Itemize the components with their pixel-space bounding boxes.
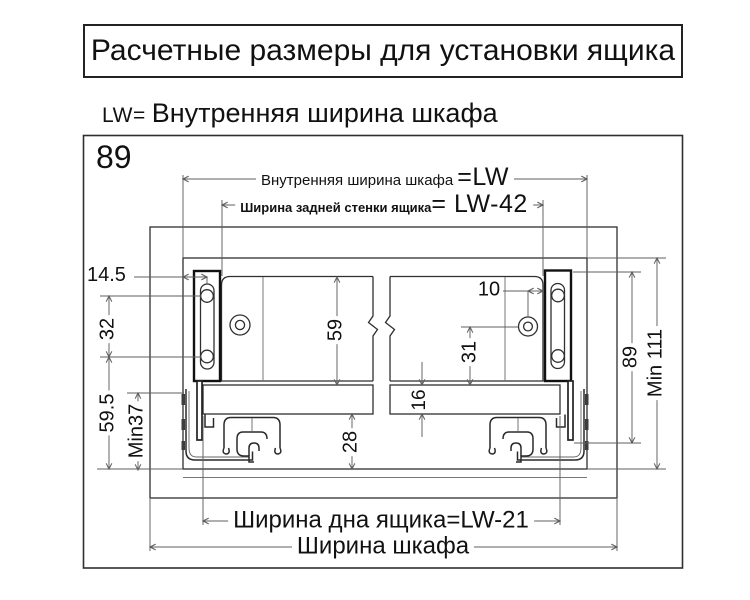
dim-label-min-inner-height: Min 111 xyxy=(645,326,668,400)
dim-label-bottom-thickness: 16 xyxy=(410,389,430,410)
corner-label-89: 89 xyxy=(96,141,132,175)
drawer-bottom-value: =LW-21 xyxy=(446,507,529,532)
dim-label-system-height: 89 xyxy=(620,343,643,371)
subtitle-lw-symbol: LW= xyxy=(102,104,146,128)
dim-label-hole-to-bottom: 31 xyxy=(459,338,482,366)
page-title: Расчетные размеры для установки ящика xyxy=(91,34,675,68)
back-width-text: Ширина задней стенки ящика xyxy=(240,201,431,215)
dim-label-hole-spacing: 32 xyxy=(97,315,120,343)
dim-label-hole-edge-offset: 10 xyxy=(478,280,500,301)
drawer-back-left xyxy=(222,277,378,382)
subtitle-text: Внутренняя ширина шкафа xyxy=(152,98,498,129)
subtitle: LW= Внутренняя ширина шкафа xyxy=(102,98,498,129)
cabinet-width-text: Ширина шкафа xyxy=(297,533,469,558)
title-box: Расчетные размеры для установки ящика xyxy=(83,24,683,78)
back-width-value: = LW-42 xyxy=(431,191,527,217)
dim-label-rail-min-clearance: Min37 xyxy=(126,401,149,461)
rear-bracket-right xyxy=(545,271,571,382)
dim-label-lower-height: 59.5 xyxy=(97,391,120,436)
dim-label-cabinet-width: Ширина шкафа xyxy=(292,533,474,558)
dim-label-back-width: Ширина задней стенки ящика = LW-42 xyxy=(235,191,533,217)
inner-width-text: Внутренняя ширина шкафа xyxy=(261,173,453,189)
drawer-bottom-left xyxy=(203,385,373,414)
dim-label-inner-width: Внутренняя ширина шкафа =LW xyxy=(256,164,514,190)
rear-bracket-left xyxy=(194,271,220,381)
dim-label-hole-offset: 14.5 xyxy=(87,265,126,286)
inner-width-value: =LW xyxy=(457,164,509,190)
dim-label-back-height: 59 xyxy=(325,316,348,344)
technical-drawing-page: Расчетные размеры для установки ящика LW… xyxy=(0,0,750,600)
dim-label-drawer-bottom-width: Ширина дна ящика =LW-21 xyxy=(228,507,534,532)
dim-label-rail-height: 28 xyxy=(340,428,363,456)
drawer-bottom-text: Ширина дна ящика xyxy=(233,507,446,532)
